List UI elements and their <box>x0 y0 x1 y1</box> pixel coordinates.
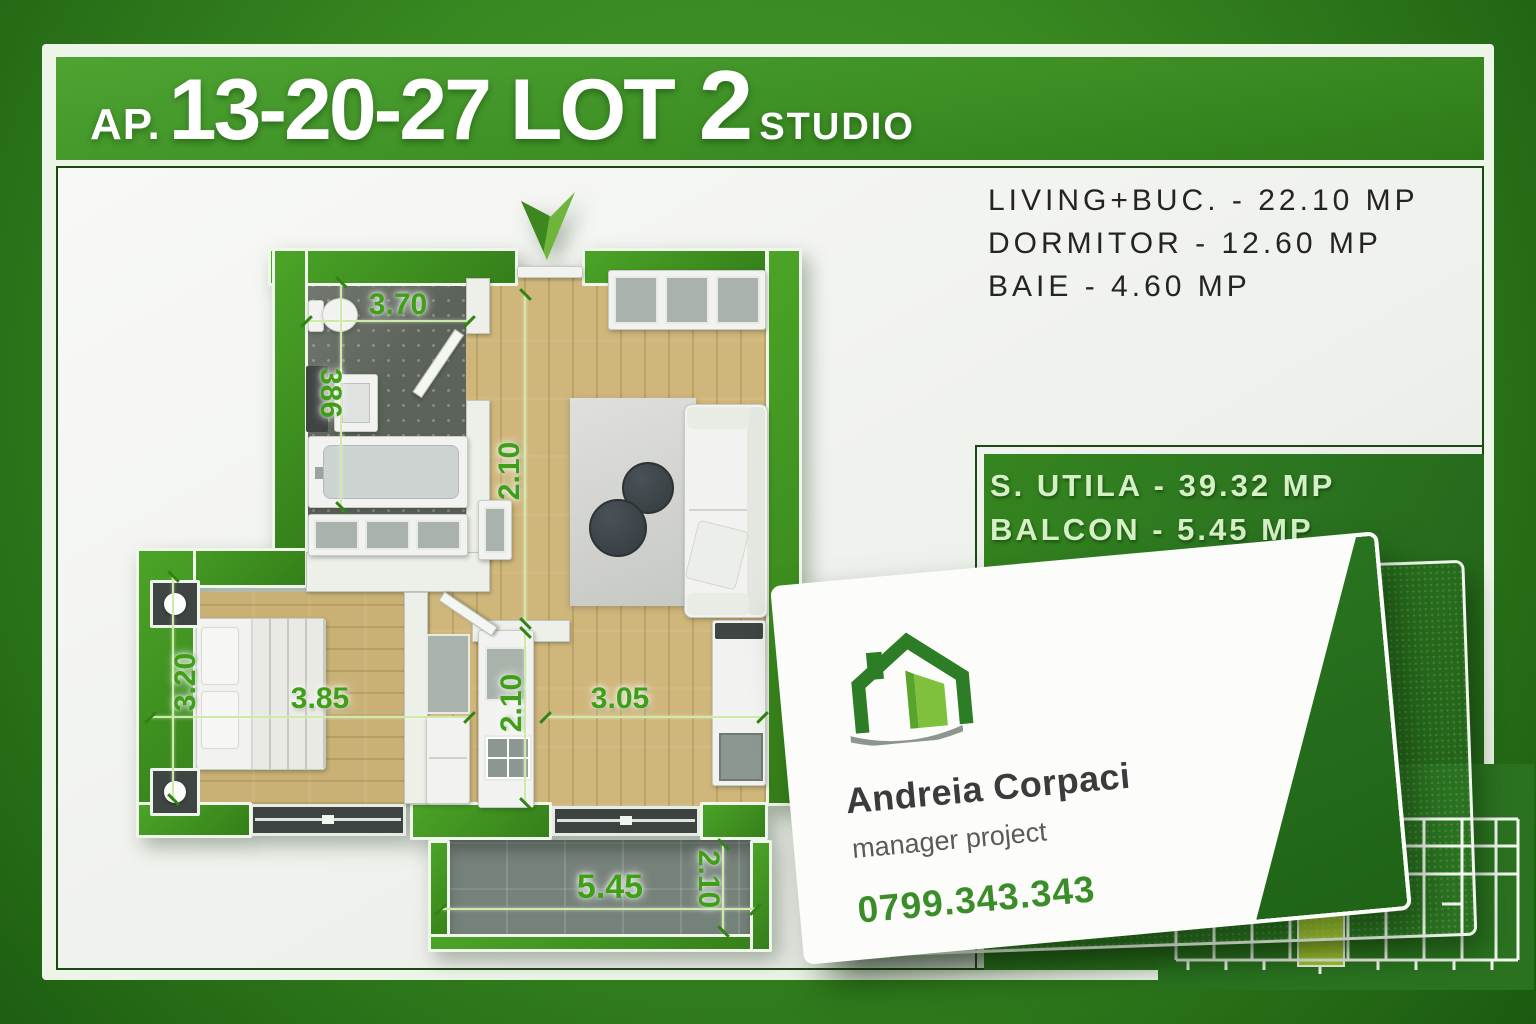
dim-bathroom-width: 3.70 <box>366 290 430 320</box>
dim-bedroom-depth: 3.20 <box>171 650 201 714</box>
dim-balcony-depth: 2.10 <box>693 847 723 911</box>
card-name: Andreia Corpaci <box>844 755 1132 823</box>
dimension-line <box>545 716 763 718</box>
card-role: manager project <box>851 816 1048 865</box>
dim-balcony-width: 5.45 <box>566 872 654 902</box>
business-card: Andreia Corpaci manager project 0799.343… <box>774 535 1407 960</box>
dimension-line <box>150 716 470 718</box>
dim-kitchen-depth: 2.10 <box>497 671 527 735</box>
house-icon <box>826 616 986 749</box>
dim-living-width: 3.05 <box>588 684 652 714</box>
flyer-page: AP. 13-20-27 LOT 2 STUDIO LIVING+BUC. - … <box>0 0 1536 1024</box>
card-phone: 0799.343.343 <box>856 868 1097 931</box>
dim-bedroom-width: 3.85 <box>288 684 352 714</box>
dim-hall-depth: 2.10 <box>495 439 525 503</box>
dim-bathroom-length: 386 <box>315 361 345 425</box>
